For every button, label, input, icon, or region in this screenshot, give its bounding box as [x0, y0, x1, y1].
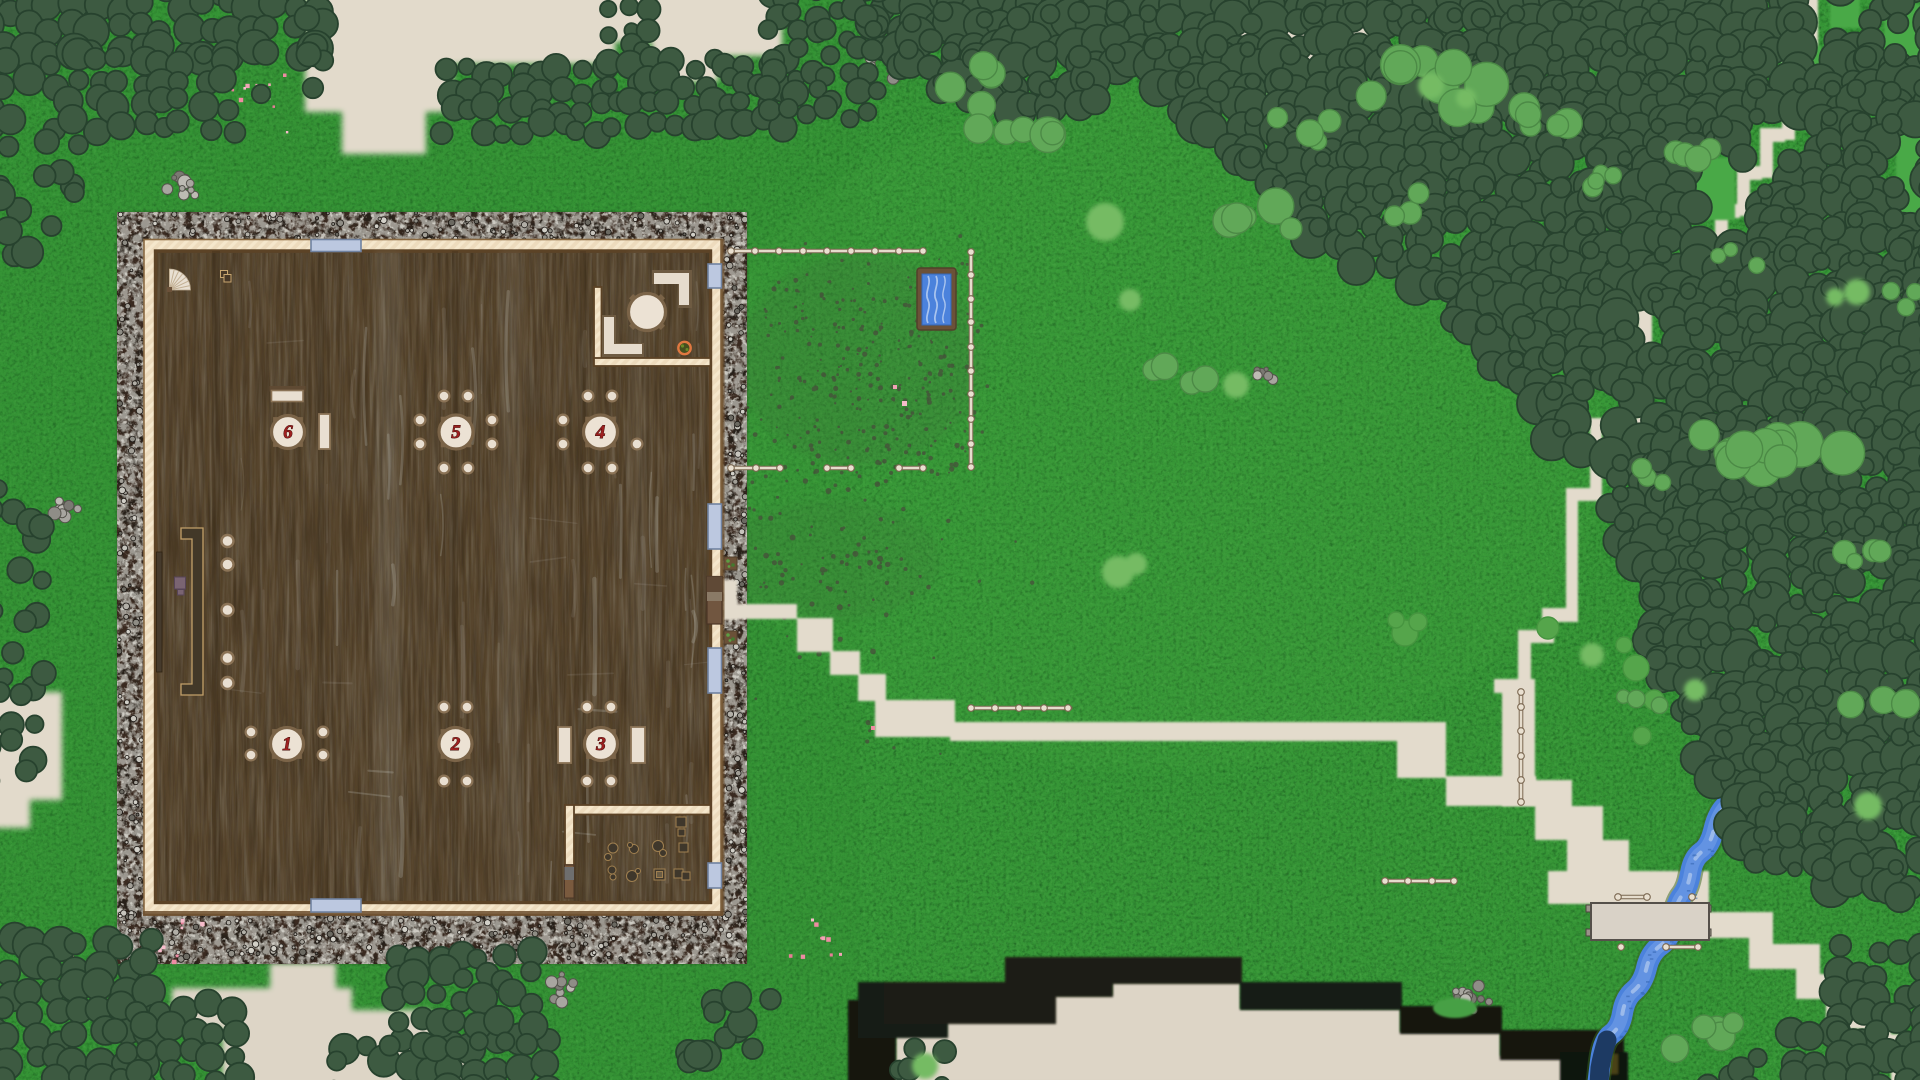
svg-text:4: 4: [595, 422, 606, 443]
svg-text:5: 5: [451, 422, 461, 443]
svg-text:1: 1: [282, 734, 292, 755]
svg-text:3: 3: [595, 734, 606, 755]
svg-text:2: 2: [450, 734, 461, 755]
svg-text:6: 6: [283, 422, 293, 443]
